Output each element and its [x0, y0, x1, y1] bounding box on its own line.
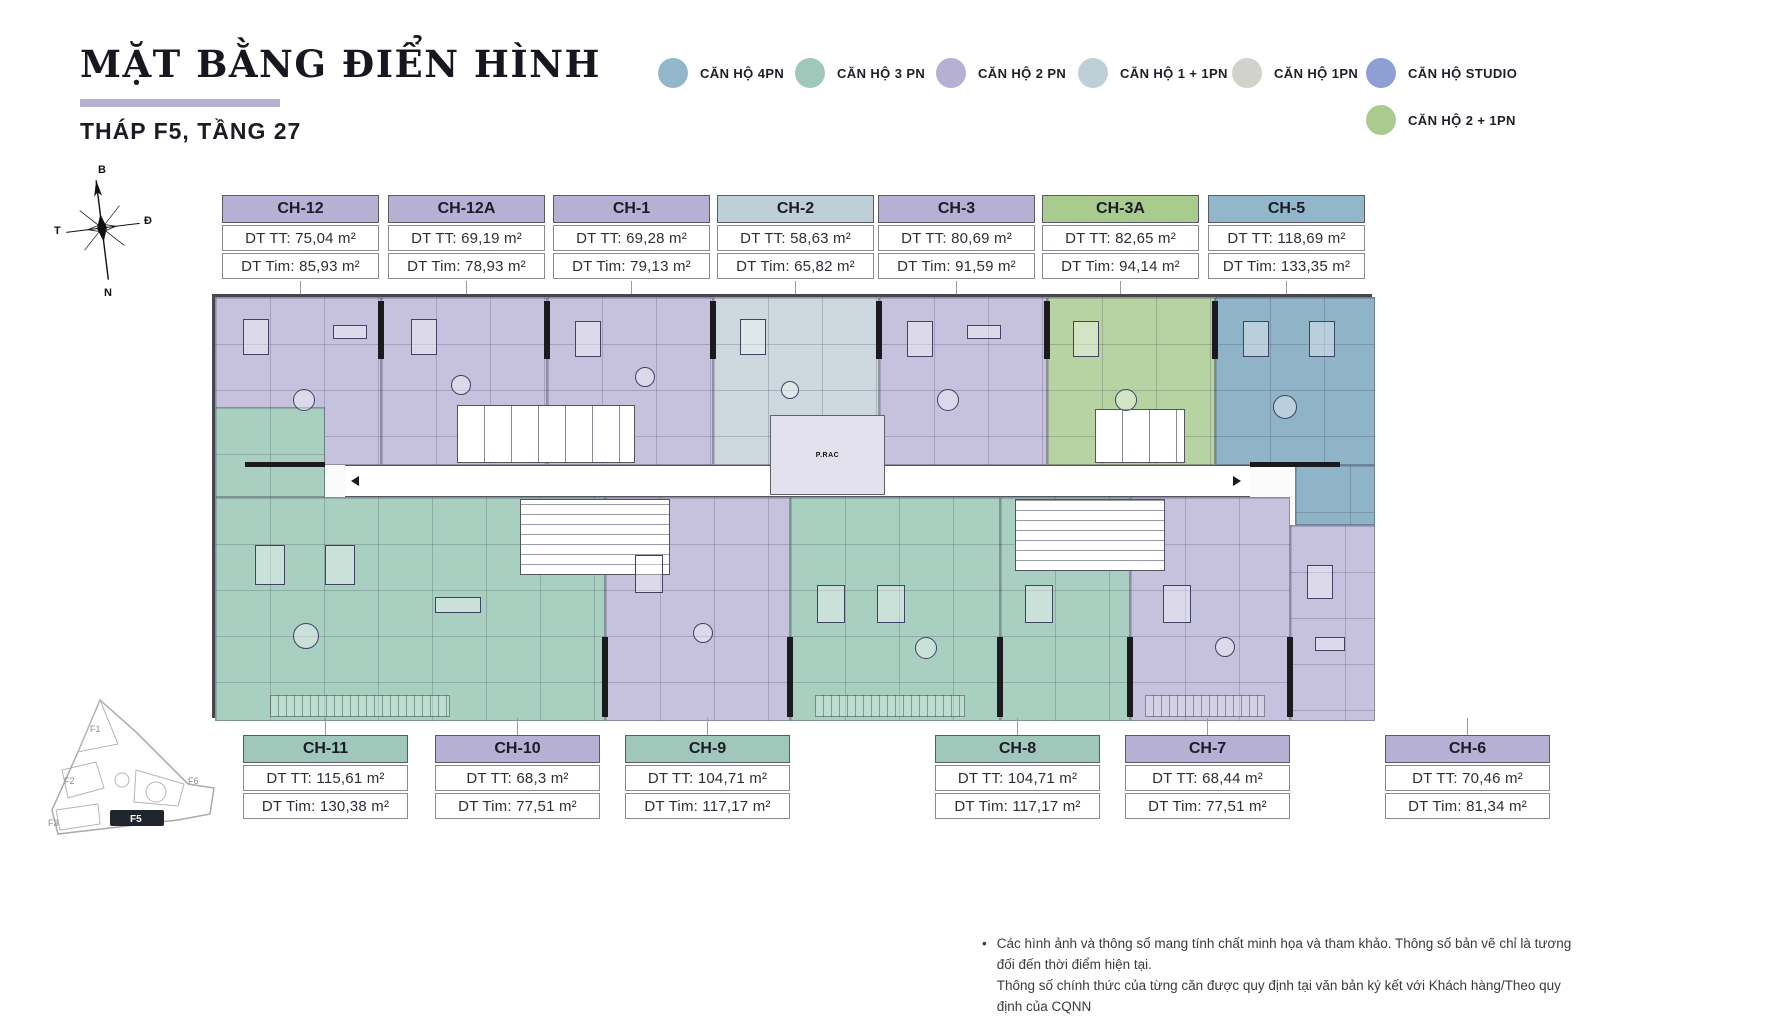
label-connector	[300, 281, 301, 294]
unit-id: CH-7	[1125, 735, 1290, 763]
plan-furniture-table	[451, 375, 471, 395]
plan-wall	[1212, 301, 1218, 359]
label-connector	[707, 718, 708, 735]
plan-wall	[602, 637, 608, 717]
plan-wall	[1044, 301, 1050, 359]
unit-id: CH-8	[935, 735, 1100, 763]
unit-area-tt: DT TT: 82,65 m²	[1042, 225, 1199, 251]
legend-item-4pn: CĂN HỘ 4PN	[658, 58, 784, 88]
unit-area-tim: DT Tim: 81,34 m²	[1385, 793, 1550, 819]
plan-balcony	[815, 695, 965, 717]
plan-furniture	[1315, 637, 1345, 651]
legend-item-2plus1pn: CĂN HỘ 2 + 1PN	[1366, 105, 1516, 135]
disclaimer-line2: Thông số chính thức của từng căn được qu…	[997, 976, 1582, 1018]
unit-area-tt: DT TT: 104,71 m²	[935, 765, 1100, 791]
unit-id: CH-10	[435, 735, 600, 763]
page-title: MẶT BẰNG ĐIỂN HÌNH	[80, 42, 601, 86]
legend-color-dot	[1366, 105, 1396, 135]
unit-area-tt: DT TT: 104,71 m²	[625, 765, 790, 791]
legend-item-2pn: CĂN HỘ 2 PN	[936, 58, 1066, 88]
unit-area-tim: DT Tim: 85,93 m²	[222, 253, 379, 279]
minimap-f5-label: F5	[130, 814, 142, 825]
unit-card-ch12a: CH-12A DT TT: 69,19 m² DT Tim: 78,93 m²	[388, 195, 545, 279]
page-subtitle: THÁP F5, TẦNG 27	[80, 118, 601, 145]
unit-area-tt: DT TT: 118,69 m²	[1208, 225, 1365, 251]
plan-furniture-bed	[907, 321, 933, 357]
unit-id: CH-11	[243, 735, 408, 763]
unit-id: CH-3	[878, 195, 1035, 223]
plan-wall	[1127, 637, 1133, 717]
plan-wall	[378, 301, 384, 359]
plan-wall	[245, 462, 325, 467]
plan-furniture-bed	[877, 585, 905, 623]
unit-card-ch1: CH-1 DT TT: 69,28 m² DT Tim: 79,13 m²	[553, 195, 710, 279]
unit-area-tim: DT Tim: 133,35 m²	[1208, 253, 1365, 279]
unit-id: CH-2	[717, 195, 874, 223]
plan-furniture-bed	[1307, 565, 1333, 599]
minimap-f2-label: F2	[64, 776, 75, 786]
plan-furniture-table	[1115, 389, 1137, 411]
plan-technical-room: P.RAC	[770, 415, 885, 495]
plan-furniture-bed	[740, 319, 766, 355]
title-accent-bar	[80, 99, 280, 107]
legend-label: CĂN HỘ 1PN	[1274, 66, 1358, 81]
legend-item-studio: CĂN HỘ STUDIO	[1366, 58, 1517, 88]
legend-color-dot	[795, 58, 825, 88]
unit-id: CH-12A	[388, 195, 545, 223]
plan-wall	[1250, 462, 1340, 467]
plan-unit-ch3	[879, 297, 1047, 465]
plan-furniture-bed	[635, 555, 663, 593]
unit-area-tim: DT Tim: 77,51 m²	[1125, 793, 1290, 819]
unit-area-tim: DT Tim: 77,51 m²	[435, 793, 600, 819]
disclaimer-bullet: •	[982, 934, 987, 1018]
plan-furniture-table	[937, 389, 959, 411]
unit-area-tt: DT TT: 68,3 m²	[435, 765, 600, 791]
unit-id: CH-3A	[1042, 195, 1199, 223]
plan-furniture-table	[781, 381, 799, 399]
plan-furniture-table	[1273, 395, 1297, 419]
plan-furniture-bed	[575, 321, 601, 357]
unit-id: CH-12	[222, 195, 379, 223]
plan-unit-ch5	[1215, 297, 1375, 465]
unit-card-ch9: CH-9 DT TT: 104,71 m² DT Tim: 117,17 m²	[625, 735, 790, 819]
compass-east-label: Đ	[144, 215, 152, 227]
plan-furniture-bed	[1243, 321, 1269, 357]
disclaimer: • Các hình ảnh và thông số mang tính chấ…	[982, 934, 1582, 1018]
plan-elevator-bank-right	[1095, 409, 1185, 463]
floor-plan: P.RAC	[212, 294, 1372, 718]
minimap-f3-label: F3	[48, 818, 59, 828]
plan-furniture-bed	[243, 319, 269, 355]
legend-label: CĂN HỘ STUDIO	[1408, 66, 1517, 81]
unit-card-ch12: CH-12 DT TT: 75,04 m² DT Tim: 85,93 m²	[222, 195, 379, 279]
legend-color-dot	[658, 58, 688, 88]
label-connector	[1017, 718, 1018, 735]
unit-area-tim: DT Tim: 79,13 m²	[553, 253, 710, 279]
plan-furniture-bed	[255, 545, 285, 585]
legend-label: CĂN HỘ 2 PN	[978, 66, 1066, 81]
unit-area-tim: DT Tim: 117,17 m²	[625, 793, 790, 819]
unit-area-tt: DT TT: 75,04 m²	[222, 225, 379, 251]
unit-card-ch7: CH-7 DT TT: 68,44 m² DT Tim: 77,51 m²	[1125, 735, 1290, 819]
unit-area-tt: DT TT: 115,61 m²	[243, 765, 408, 791]
unit-card-ch10: CH-10 DT TT: 68,3 m² DT Tim: 77,51 m²	[435, 735, 600, 819]
unit-id: CH-9	[625, 735, 790, 763]
legend-color-dot	[1232, 58, 1262, 88]
legend-color-dot	[936, 58, 966, 88]
legend-color-dot	[1366, 58, 1396, 88]
plan-furniture-bed	[1309, 321, 1335, 357]
label-connector	[325, 718, 326, 735]
technical-room-label: P.RAC	[816, 452, 839, 459]
plan-wall	[544, 301, 550, 359]
legend-item-1plus1pn: CĂN HỘ 1 + 1PN	[1078, 58, 1228, 88]
plan-wall	[1287, 637, 1293, 717]
corridor-arrow-left-icon	[351, 476, 359, 486]
label-connector	[517, 718, 518, 735]
unit-card-ch5: CH-5 DT TT: 118,69 m² DT Tim: 133,35 m²	[1208, 195, 1365, 279]
plan-furniture	[967, 325, 1001, 339]
label-connector	[795, 281, 796, 294]
unit-area-tt: DT TT: 68,44 m²	[1125, 765, 1290, 791]
unit-area-tt: DT TT: 69,19 m²	[388, 225, 545, 251]
unit-card-ch8: CH-8 DT TT: 104,71 m² DT Tim: 117,17 m²	[935, 735, 1100, 819]
legend-item-3pn: CĂN HỘ 3 PN	[795, 58, 925, 88]
plan-stairs-right	[1015, 499, 1165, 571]
plan-wall	[997, 637, 1003, 717]
plan-balcony	[270, 695, 450, 717]
unit-card-ch6: CH-6 DT TT: 70,46 m² DT Tim: 81,34 m²	[1385, 735, 1550, 819]
plan-furniture-bed	[817, 585, 845, 623]
plan-wall	[787, 637, 793, 717]
plan-furniture-bed	[1073, 321, 1099, 357]
legend-label: CĂN HỘ 4PN	[700, 66, 784, 81]
unit-area-tim: DT Tim: 91,59 m²	[878, 253, 1035, 279]
legend-item-1pn: CĂN HỘ 1PN	[1232, 58, 1358, 88]
unit-card-ch3a: CH-3A DT TT: 82,65 m² DT Tim: 94,14 m²	[1042, 195, 1199, 279]
label-connector	[956, 281, 957, 294]
plan-furniture-table	[293, 623, 319, 649]
compass-north-label: B	[98, 164, 106, 176]
unit-area-tt: DT TT: 69,28 m²	[553, 225, 710, 251]
legend-label: CĂN HỘ 1 + 1PN	[1120, 66, 1228, 81]
label-connector	[1207, 718, 1208, 735]
label-connector	[1467, 718, 1468, 735]
plan-furniture-bed	[325, 545, 355, 585]
plan-unit-ch11-ext	[215, 407, 325, 497]
unit-area-tim: DT Tim: 130,38 m²	[243, 793, 408, 819]
compass-rose-icon: B Đ T N	[52, 162, 152, 302]
legend-label: CĂN HỘ 3 PN	[837, 66, 925, 81]
plan-elevator-bank-left	[457, 405, 635, 463]
plan-unit-ch6	[1290, 525, 1375, 721]
plan-furniture-sofa	[435, 597, 481, 613]
plan-wall	[710, 301, 716, 359]
plan-furniture-table	[635, 367, 655, 387]
unit-id: CH-6	[1385, 735, 1550, 763]
unit-card-ch2: CH-2 DT TT: 58,63 m² DT Tim: 65,82 m²	[717, 195, 874, 279]
plan-furniture-bed	[411, 319, 437, 355]
plan-furniture-bed	[1163, 585, 1191, 623]
label-connector	[631, 281, 632, 294]
plan-furniture-table	[693, 623, 713, 643]
legend-label: CĂN HỘ 2 + 1PN	[1408, 113, 1516, 128]
minimap-f1-label: F1	[90, 724, 101, 734]
plan-wall	[876, 301, 882, 359]
header: MẶT BẰNG ĐIỂN HÌNH THÁP F5, TẦNG 27	[80, 42, 601, 145]
unit-area-tt: DT TT: 58,63 m²	[717, 225, 874, 251]
plan-furniture-bed	[1025, 585, 1053, 623]
compass-west-label: T	[54, 225, 61, 237]
label-connector	[1120, 281, 1121, 294]
compass-south-label: N	[104, 287, 112, 299]
label-connector	[466, 281, 467, 294]
disclaimer-line1: Các hình ảnh và thông số mang tính chất …	[997, 934, 1582, 976]
plan-furniture-table	[293, 389, 315, 411]
unit-area-tim: DT Tim: 65,82 m²	[717, 253, 874, 279]
unit-area-tim: DT Tim: 78,93 m²	[388, 253, 545, 279]
plan-furniture	[333, 325, 367, 339]
label-connector	[1286, 281, 1287, 294]
plan-furniture-table	[915, 637, 937, 659]
legend-color-dot	[1078, 58, 1108, 88]
unit-card-ch11: CH-11 DT TT: 115,61 m² DT Tim: 130,38 m²	[243, 735, 408, 819]
unit-area-tim: DT Tim: 117,17 m²	[935, 793, 1100, 819]
unit-card-ch3: CH-3 DT TT: 80,69 m² DT Tim: 91,59 m²	[878, 195, 1035, 279]
unit-area-tim: DT Tim: 94,14 m²	[1042, 253, 1199, 279]
plan-balcony	[1145, 695, 1265, 717]
minimap-f6-label: F6	[188, 776, 199, 786]
corridor-arrow-right-icon	[1233, 476, 1241, 486]
unit-area-tt: DT TT: 70,46 m²	[1385, 765, 1550, 791]
site-minimap: F1 F2 F6 F3 F5	[38, 692, 228, 882]
plan-unit-ch5-ext	[1295, 465, 1375, 525]
unit-id: CH-1	[553, 195, 710, 223]
unit-id: CH-5	[1208, 195, 1365, 223]
unit-area-tt: DT TT: 80,69 m²	[878, 225, 1035, 251]
plan-furniture-table	[1215, 637, 1235, 657]
